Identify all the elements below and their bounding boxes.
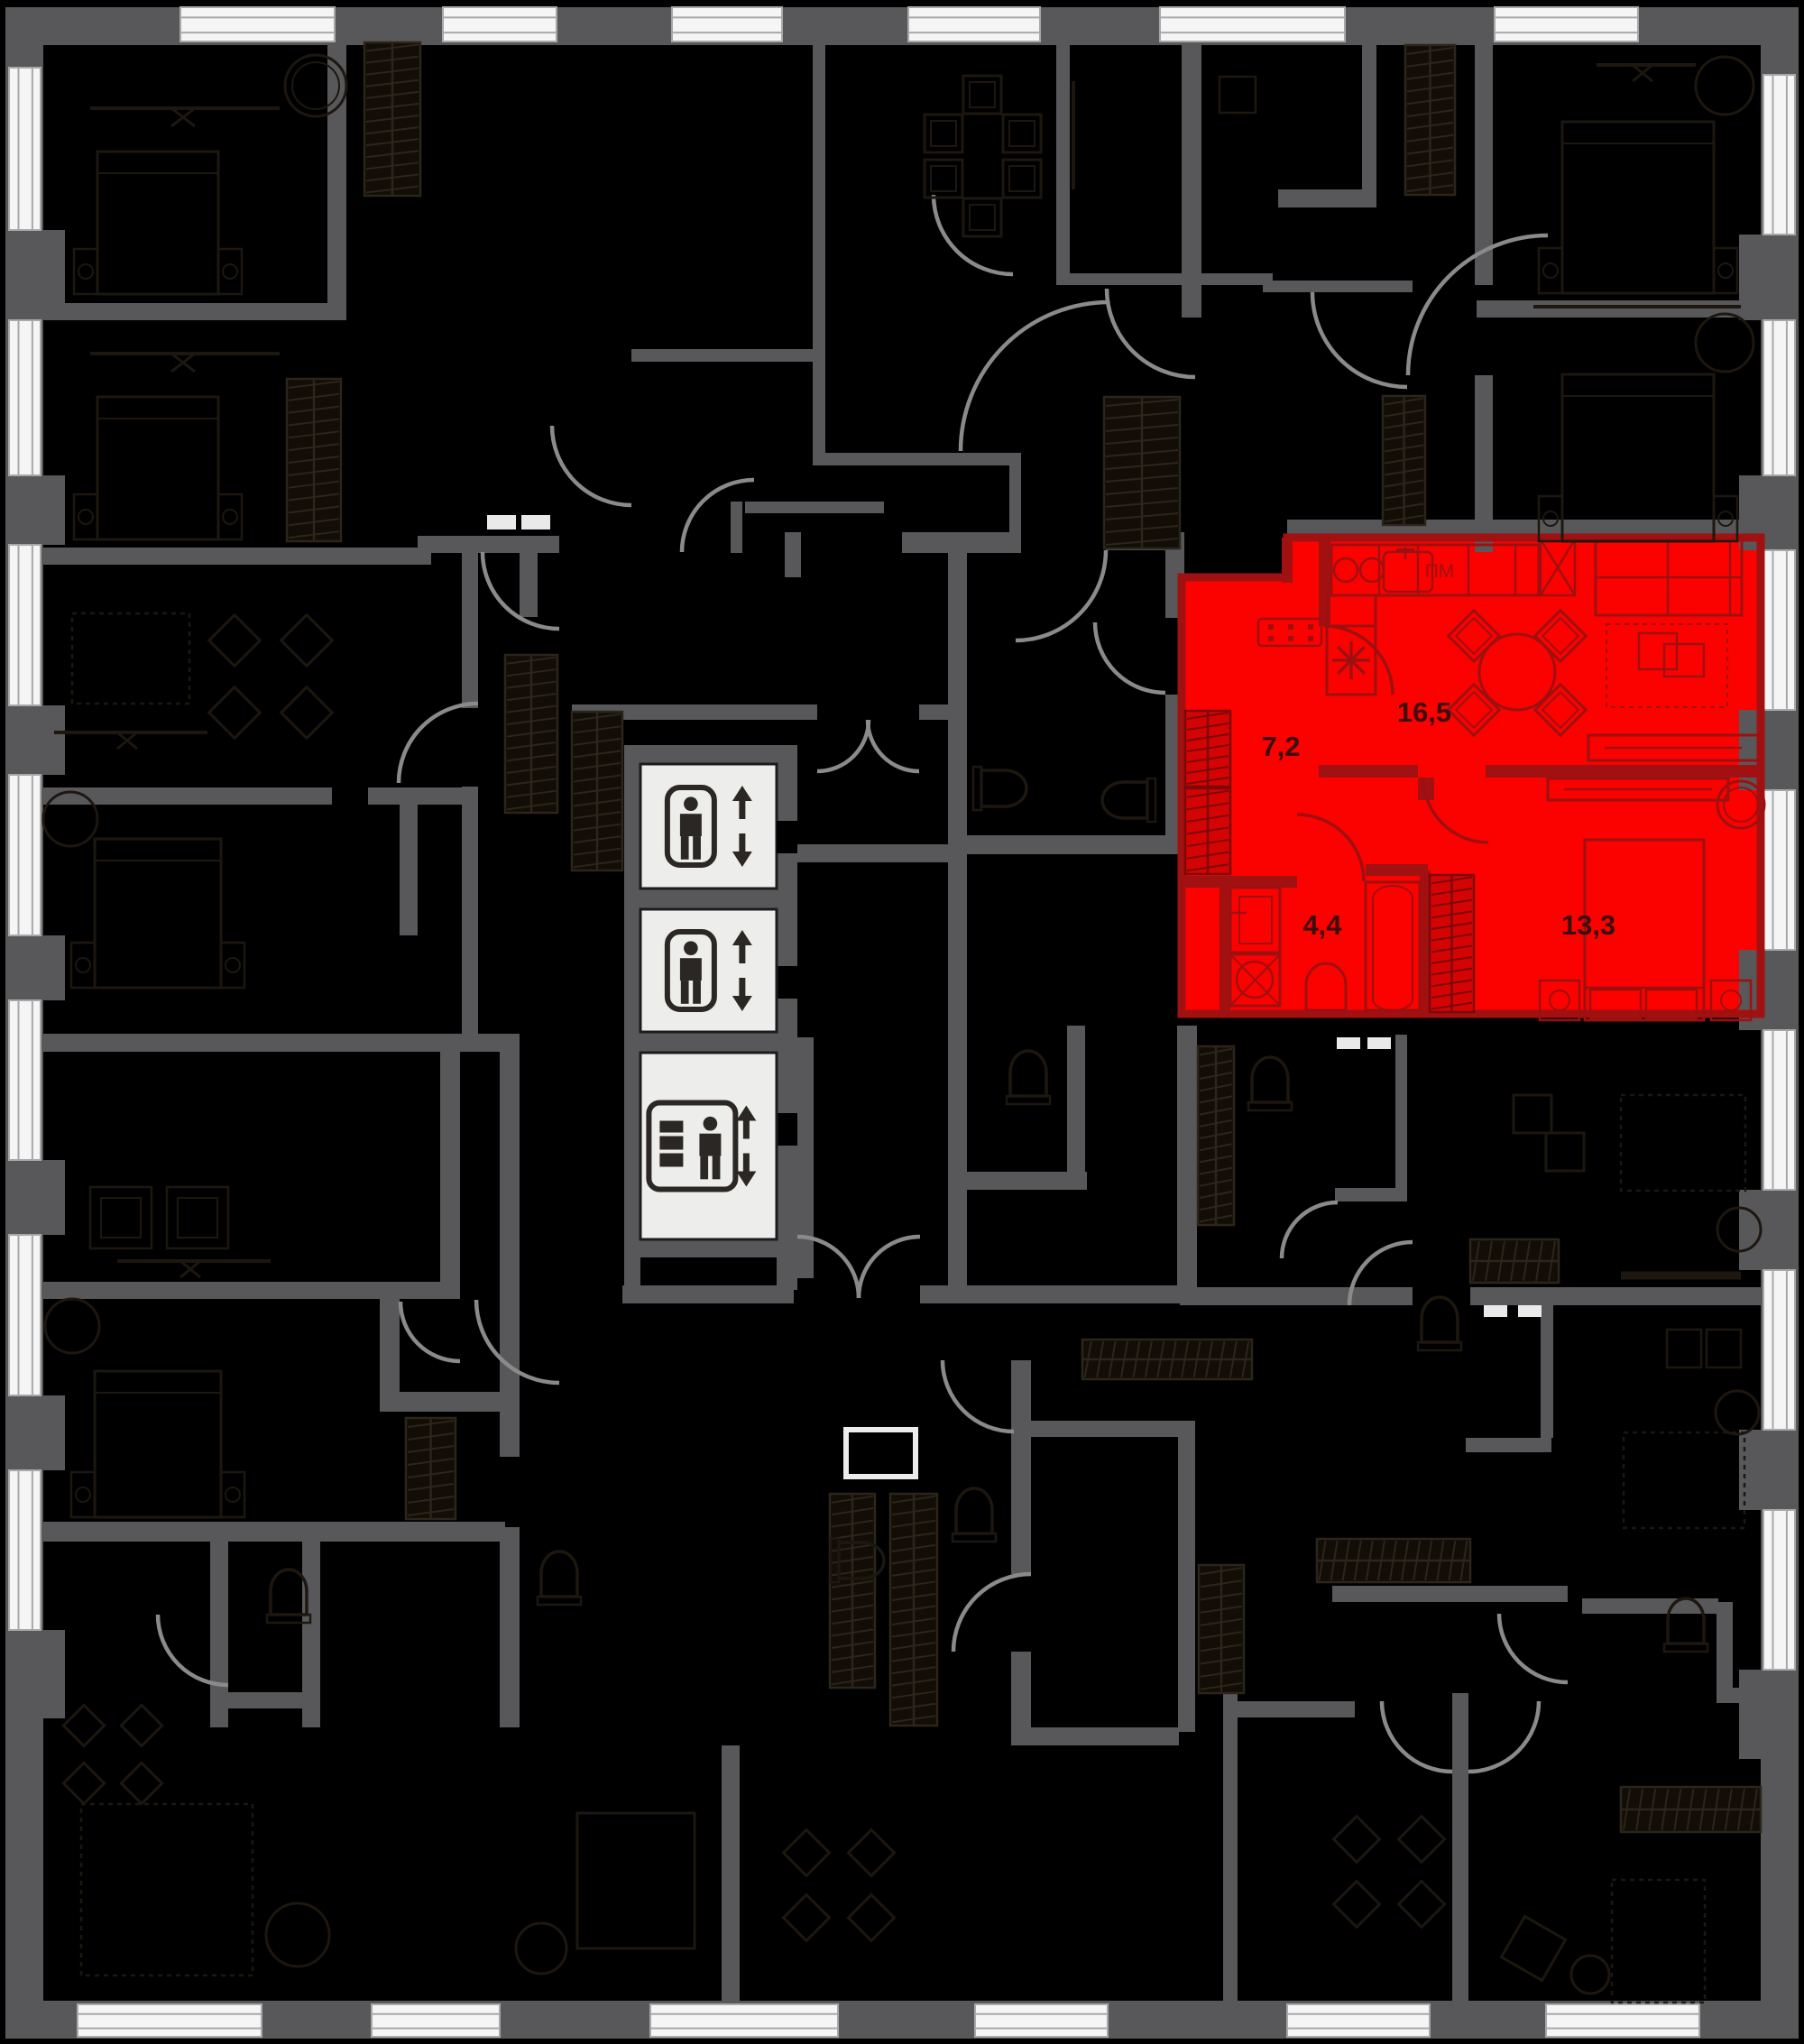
svg-text:13,3: 13,3 [1561, 909, 1615, 941]
svg-text:16,5: 16,5 [1397, 696, 1451, 728]
svg-text:4,4: 4,4 [1302, 909, 1342, 941]
svg-text:7,2: 7,2 [1261, 731, 1300, 762]
svg-text:ПМ: ПМ [1425, 561, 1455, 582]
